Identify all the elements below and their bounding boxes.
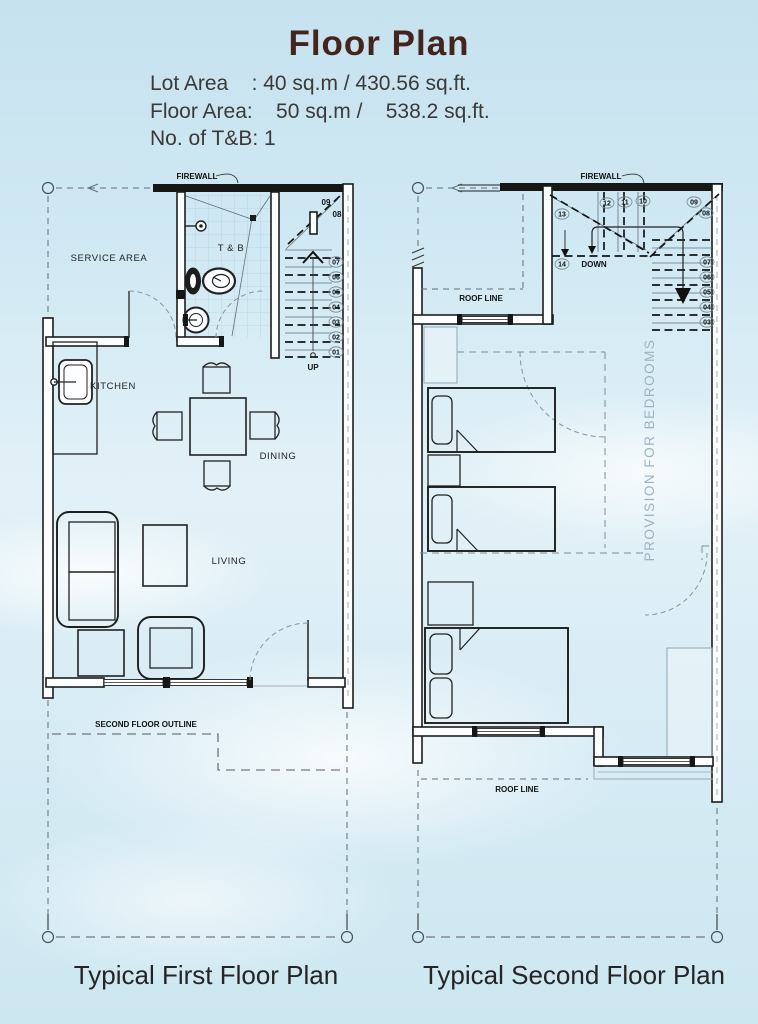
toilet-bath-room: T & B bbox=[176, 192, 279, 358]
stairwell-wall bbox=[543, 186, 552, 324]
east-wall-first bbox=[343, 184, 353, 708]
coffee-table bbox=[143, 525, 187, 586]
dining-chair bbox=[153, 412, 182, 440]
second-floor-plan: FIREWALL ROOF LINE bbox=[412, 172, 723, 943]
bedroom-furniture bbox=[424, 327, 712, 758]
up-label: UP bbox=[307, 363, 319, 372]
provision-door-arc-upper bbox=[520, 352, 605, 437]
step-10: 10 bbox=[639, 199, 647, 206]
step-07: 07 bbox=[332, 260, 340, 267]
north-wall-interior bbox=[413, 314, 553, 325]
kitchen-sink-icon bbox=[51, 360, 92, 404]
single-bed bbox=[428, 388, 555, 452]
step-03: 03 bbox=[703, 320, 711, 327]
stair-numbers-second: 03 04 05 06 07 08 09 10 11 12 13 14 bbox=[555, 196, 714, 327]
step-08: 08 bbox=[702, 211, 710, 218]
down-arrowhead-icon bbox=[675, 288, 691, 304]
step-02: 02 bbox=[332, 335, 340, 342]
service-area-label: SERVICE AREA bbox=[71, 253, 148, 264]
step-05: 05 bbox=[703, 290, 711, 297]
down-label: DOWN bbox=[581, 260, 607, 269]
step-12: 12 bbox=[603, 201, 611, 208]
dining-area: DINING bbox=[153, 363, 297, 490]
nightstand bbox=[428, 455, 460, 486]
step-09: 09 bbox=[322, 198, 331, 207]
firewall-first: FIREWALL bbox=[153, 172, 347, 192]
provision-bedrooms: PROVISION FOR BEDROOMS bbox=[420, 339, 713, 615]
step-08: 08 bbox=[333, 210, 342, 219]
stairs-first-floor: UP 01 02 03 04 05 06 07 08 09 bbox=[285, 195, 343, 372]
first-floor-plan: FIREWALL SERVICE AREA bbox=[43, 172, 354, 943]
dining-label: DINING bbox=[260, 451, 297, 462]
floor-plan-drawing: FIREWALL SERVICE AREA bbox=[0, 0, 758, 1024]
step-11: 11 bbox=[621, 200, 629, 207]
service-door-arc bbox=[129, 291, 176, 338]
bedside-table bbox=[428, 582, 473, 625]
step-05: 05 bbox=[332, 290, 340, 297]
firewall-label-first: FIREWALL bbox=[177, 172, 218, 181]
tb-label: T & B bbox=[218, 243, 245, 254]
living-area: LIVING bbox=[57, 512, 246, 679]
roof-line-lower-label: ROOF LINE bbox=[495, 785, 539, 794]
roof-line-upper-label: ROOF LINE bbox=[459, 294, 503, 303]
firewall-label-second: FIREWALL bbox=[581, 172, 622, 181]
dining-table bbox=[190, 398, 246, 455]
cabinet bbox=[424, 327, 457, 383]
west-wall-first bbox=[43, 318, 53, 698]
dining-chair bbox=[250, 412, 279, 439]
west-wall-second bbox=[413, 268, 422, 763]
step-07: 07 bbox=[703, 260, 711, 267]
future-closet bbox=[667, 648, 712, 758]
roof-line-upper: ROOF LINE bbox=[421, 194, 523, 303]
step-01: 01 bbox=[332, 350, 340, 357]
second-floor-outline: SECOND FLOOR OUTLINE bbox=[52, 720, 345, 770]
caption-first-floor: Typical First Floor Plan bbox=[36, 960, 376, 991]
step-14: 14 bbox=[558, 262, 566, 269]
toilet-icon bbox=[185, 268, 235, 295]
double-bed bbox=[425, 628, 568, 723]
step-06: 06 bbox=[703, 275, 711, 282]
caption-second-floor: Typical Second Floor Plan bbox=[404, 960, 744, 991]
armchair bbox=[138, 617, 204, 679]
kitchen: KITCHEN bbox=[51, 342, 136, 454]
living-label: LIVING bbox=[212, 556, 247, 567]
dining-chair bbox=[203, 363, 230, 393]
floor-plan-page: { "header": { "title": "Floor Plan", "sp… bbox=[0, 0, 758, 1024]
front-door-arc bbox=[250, 623, 308, 681]
step-06: 06 bbox=[332, 275, 340, 282]
east-wall-second bbox=[712, 184, 722, 802]
second-floor-outline-label: SECOND FLOOR OUTLINE bbox=[95, 720, 197, 729]
service-area: SERVICE AREA bbox=[46, 253, 176, 347]
roof-line-lower: ROOF LINE bbox=[421, 779, 588, 794]
down-direction-line bbox=[592, 227, 683, 290]
sofa bbox=[57, 512, 118, 627]
step-04: 04 bbox=[703, 305, 711, 312]
dining-chair bbox=[204, 461, 230, 490]
step-13: 13 bbox=[558, 212, 566, 219]
provision-label: PROVISION FOR BEDROOMS bbox=[642, 339, 657, 562]
step-09: 09 bbox=[690, 200, 698, 207]
side-table bbox=[78, 630, 124, 676]
stair-partition-wall bbox=[271, 192, 279, 358]
single-bed bbox=[428, 487, 555, 551]
lavatory-icon bbox=[183, 308, 209, 333]
step-03: 03 bbox=[332, 320, 340, 327]
kitchen-label: KITCHEN bbox=[90, 381, 136, 392]
stairs-second-floor: 03 04 05 06 07 08 09 10 11 12 13 14 DOWN bbox=[550, 192, 719, 330]
step-04: 04 bbox=[332, 305, 340, 312]
